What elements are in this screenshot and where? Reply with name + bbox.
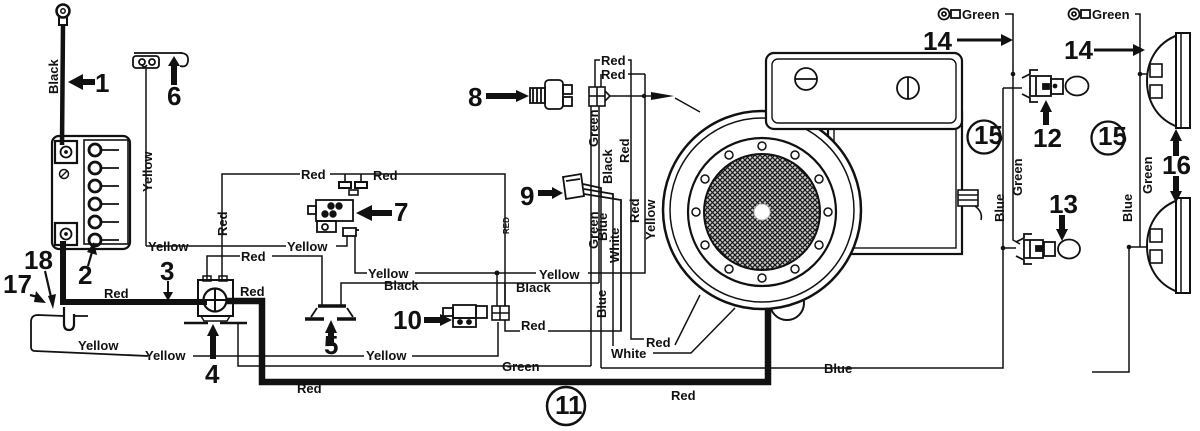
svg-text:17: 17 (3, 269, 32, 299)
svg-text:Blue: Blue (992, 194, 1007, 222)
svg-text:Yellow: Yellow (368, 266, 409, 281)
svg-text:Red: Red (241, 249, 266, 264)
svg-text:Green: Green (1140, 156, 1155, 194)
svg-text:Black: Black (600, 149, 615, 184)
svg-text:15: 15 (1098, 121, 1127, 151)
svg-text:Black: Black (46, 59, 61, 94)
svg-text:Green: Green (962, 7, 1000, 22)
svg-text:Red: Red (240, 284, 265, 299)
svg-text:Blue: Blue (1120, 194, 1135, 222)
svg-text:14: 14 (923, 26, 952, 56)
svg-text:Red: Red (671, 388, 696, 403)
svg-text:15: 15 (974, 120, 1003, 150)
svg-text:13: 13 (1049, 189, 1078, 219)
svg-text:Yellow: Yellow (643, 199, 658, 240)
svg-text:7: 7 (394, 197, 408, 227)
svg-text:Yellow: Yellow (366, 348, 407, 363)
svg-text:2: 2 (78, 260, 92, 290)
svg-text:RED: RED (502, 217, 511, 234)
svg-text:Yellow: Yellow (140, 151, 155, 192)
svg-text:9: 9 (520, 181, 534, 211)
svg-text:Red: Red (104, 286, 129, 301)
svg-text:Red: Red (521, 318, 546, 333)
svg-text:Red: Red (215, 211, 230, 236)
svg-text:Green: Green (586, 109, 601, 147)
svg-text:1: 1 (95, 68, 109, 98)
svg-text:White: White (607, 228, 622, 263)
svg-text:4: 4 (205, 359, 220, 389)
svg-text:Red: Red (601, 53, 626, 68)
svg-text:14: 14 (1064, 35, 1093, 65)
svg-text:Yellow: Yellow (148, 239, 189, 254)
svg-text:Blue: Blue (594, 290, 609, 318)
svg-text:Yellow: Yellow (145, 348, 186, 363)
svg-text:11: 11 (555, 390, 583, 420)
svg-text:Blue: Blue (824, 361, 852, 376)
svg-text:Red: Red (627, 198, 642, 223)
svg-text:5: 5 (324, 330, 338, 360)
svg-text:Yellow: Yellow (78, 338, 119, 353)
svg-text:Yellow: Yellow (539, 267, 580, 282)
svg-text:Red: Red (297, 381, 322, 396)
svg-text:White: White (611, 346, 646, 361)
svg-text:Yellow: Yellow (287, 239, 328, 254)
svg-text:6: 6 (167, 81, 181, 111)
svg-text:Red: Red (373, 168, 398, 183)
svg-text:Green: Green (1010, 158, 1025, 196)
svg-text:Red: Red (301, 167, 326, 182)
svg-text:Red: Red (601, 67, 626, 82)
svg-text:10: 10 (393, 305, 422, 335)
svg-text:Red: Red (617, 138, 632, 163)
svg-text:Green: Green (502, 359, 540, 374)
svg-text:Black: Black (516, 280, 551, 295)
svg-text:16: 16 (1162, 150, 1191, 180)
svg-text:8: 8 (468, 82, 482, 112)
svg-text:Green: Green (1092, 7, 1130, 22)
svg-text:12: 12 (1033, 123, 1062, 153)
svg-text:Red: Red (646, 335, 671, 350)
